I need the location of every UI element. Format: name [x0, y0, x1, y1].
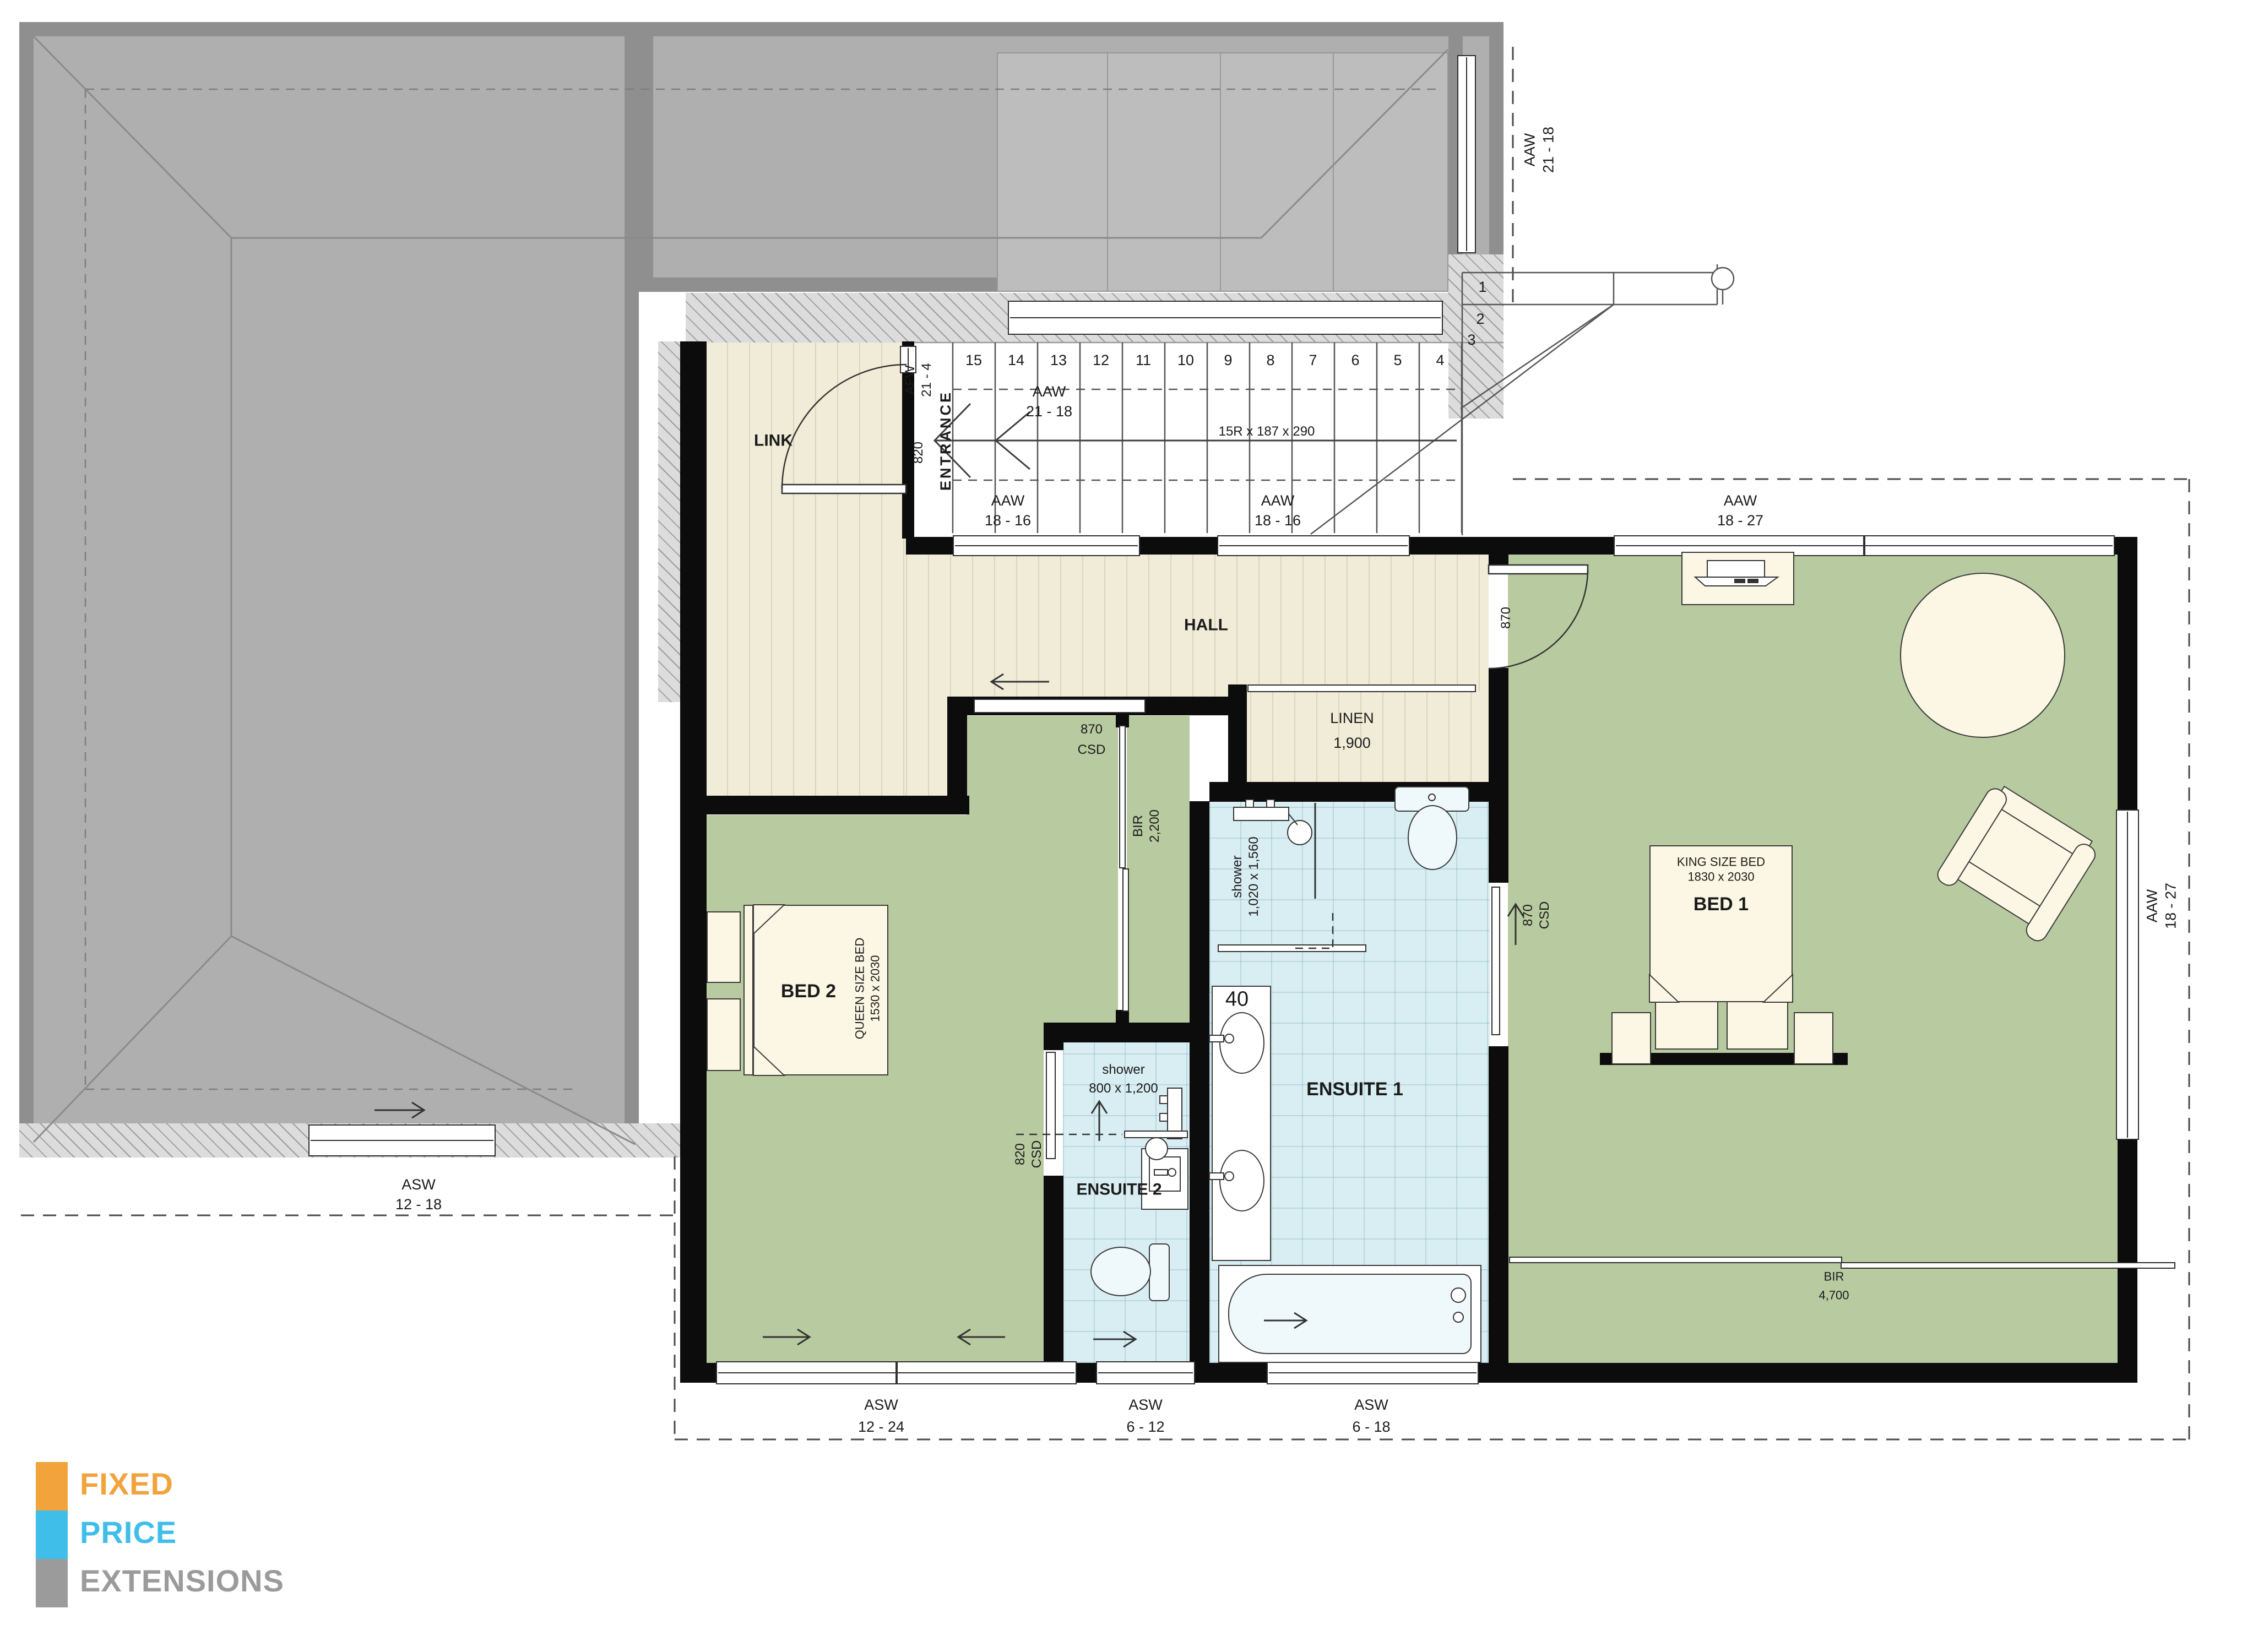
- stair-number: 9: [1224, 351, 1232, 370]
- hall-window-a-code: AAW: [991, 492, 1025, 510]
- bed1-desk: [1681, 552, 1794, 605]
- entrance-label: ENTRANCE: [937, 390, 956, 491]
- stair-number: 6: [1351, 351, 1359, 370]
- eave-hatch-stair: [1448, 254, 1503, 419]
- linen-label: LINEN: [1330, 709, 1374, 728]
- wall-ensuite-mid: [1190, 801, 1209, 1363]
- stair-number: 8: [1266, 351, 1274, 370]
- ensuite1-door-width: 870: [1520, 901, 1537, 930]
- ensuite2-window-code: ASW: [1128, 1396, 1163, 1415]
- bed1-bed-type: KING SIZE BED: [1677, 854, 1765, 870]
- top-right-window-code: AAW: [1521, 127, 1539, 173]
- ensuite1-shower-block: shower 1,020 x 1,560: [1229, 836, 1262, 916]
- top-right-window-size: 21 - 18: [1539, 127, 1558, 173]
- bed1-top-window-size: 18 - 27: [1717, 512, 1763, 530]
- stair-number: 12: [1093, 351, 1109, 370]
- existing-side-window: [1457, 55, 1476, 253]
- bed2-bed-type: QUEEN SIZE BED: [853, 938, 868, 1040]
- wall-bed1-left-a: [1489, 537, 1508, 569]
- logo-block-gray: [36, 1559, 68, 1607]
- ensuite1-toilet-bowl: [1408, 805, 1457, 870]
- top-right-window-block: AAW 21 - 18: [1521, 127, 1558, 173]
- bed1-round-table: [1900, 573, 2065, 738]
- stair-winder-1: 1: [1478, 278, 1486, 297]
- floor-plan: LINK ENTRANCE HALL LINEN 1,900 KING SIZE…: [0, 0, 2258, 1652]
- bed1-side-table-right: [1794, 1012, 1833, 1064]
- afw-size: 21 - 4: [919, 363, 935, 396]
- ensuite1-csd-panel: [1491, 887, 1500, 1035]
- window-aaw-18-16-a: [953, 535, 1140, 556]
- window-asw-6-18: [1267, 1361, 1479, 1384]
- stair-number: 5: [1393, 351, 1402, 370]
- logo-block-orange: [36, 1462, 68, 1510]
- window-divider: [895, 1361, 898, 1384]
- bed2-bir-floor: [1127, 716, 1190, 1023]
- bed2-head-edge: [743, 905, 753, 1075]
- bed2-door-width: 870: [1081, 721, 1103, 738]
- logo-word-fixed: FIXED: [80, 1466, 173, 1502]
- bir2-cap-bottom: [1116, 1010, 1129, 1023]
- bed1-pillow-left: [1655, 1001, 1718, 1050]
- bed2-side-table-bottom: [707, 998, 741, 1071]
- roof-panel-line: [1220, 53, 1221, 291]
- hall-label: HALL: [1184, 615, 1228, 635]
- hall-window-b-size: 18 - 16: [1255, 512, 1301, 530]
- bed1-right-window-code: AAW: [2143, 883, 2162, 929]
- ensuite2-toilet-bowl: [1090, 1247, 1151, 1296]
- stair-spec: 15R x 187 x 290: [1219, 423, 1315, 440]
- logo-block-blue: [36, 1510, 68, 1559]
- wall-ensuite2-left-a: [1044, 1023, 1063, 1050]
- ensuite1-label: ENSUITE 1: [1306, 1078, 1403, 1101]
- stair-number: 7: [1309, 351, 1317, 370]
- bed2-bottom-window-code: ASW: [864, 1396, 898, 1415]
- bed2-bir-block: BIR 2,200: [1130, 809, 1163, 843]
- ensuite1-door-block: 870 CSD: [1520, 901, 1553, 930]
- wall-hall-bed2-left: [705, 796, 969, 814]
- bed1-pillow-right: [1727, 1001, 1788, 1050]
- bed1-side-table-left: [1611, 1012, 1651, 1064]
- bed2-bir-size: 2,200: [1147, 809, 1163, 843]
- ensuite2-csd-panel: [1046, 1052, 1056, 1159]
- link-floor: [705, 343, 906, 796]
- ensuite1-window-code: ASW: [1354, 1396, 1388, 1415]
- ensuite1-door-type: CSD: [1537, 901, 1553, 930]
- hall-floor-jog: [906, 698, 947, 797]
- ensuite1-shower-size: 1,020 x 1,560: [1246, 836, 1262, 916]
- ensuite2-door-block: 820 CSD: [1012, 1140, 1045, 1169]
- existing-roof-main: [19, 22, 639, 1156]
- bed2-bed-size: 1530 x 2030: [867, 938, 883, 1040]
- stair-number: 15: [965, 351, 982, 370]
- stair-number: 11: [1136, 351, 1151, 370]
- bed2-bottom-window-size: 12 - 24: [858, 1418, 904, 1437]
- bed1-bir-size: 4,700: [1819, 1287, 1849, 1303]
- ensuite1-shower-label: shower: [1229, 836, 1246, 916]
- ensuite2-toilet-tank: [1149, 1243, 1170, 1301]
- bed2-door-type: CSD: [1078, 742, 1106, 758]
- ensuite1-basin-bottom: [1219, 1150, 1264, 1211]
- ensuite1-vanity-width: 40: [1225, 986, 1249, 1013]
- bed2-csd-track: [974, 699, 1146, 713]
- bed1-label: BED 1: [1694, 893, 1749, 916]
- entry-fixed-window-block: AFW 21 - 4: [902, 363, 935, 396]
- wall-ensuite2-top: [1044, 1023, 1209, 1042]
- bed2-bir-door-b: [1122, 868, 1129, 1012]
- ensuite1-window-size: 6 - 18: [1352, 1418, 1390, 1437]
- link-label: LINK: [754, 430, 793, 451]
- hall-window-a-size: 18 - 16: [985, 512, 1031, 530]
- existing-window-asw-12-18: [308, 1124, 496, 1156]
- bed1-bir-label: BIR: [1824, 1269, 1844, 1284]
- stair-window-code: AAW: [1033, 383, 1066, 401]
- ensuite1-bath-inner: [1228, 1274, 1472, 1354]
- window-aaw-18-16-b: [1217, 535, 1410, 556]
- logo-word-price: PRICE: [80, 1514, 177, 1550]
- stair-number: 4: [1436, 351, 1444, 370]
- existing-roof-lower-section: [997, 52, 1448, 292]
- logo-word-extensions: EXTENSIONS: [80, 1563, 284, 1599]
- bed2-bed-type-block: QUEEN SIZE BED 1530 x 2030: [853, 938, 883, 1040]
- wall-left: [680, 341, 707, 1382]
- ensuite2-window-size: 6 - 12: [1126, 1418, 1164, 1437]
- ensuite2-door-type: CSD: [1029, 1140, 1045, 1169]
- bed1-bir-door-a: [1509, 1257, 1842, 1263]
- ensuite1-basin-top: [1219, 1012, 1264, 1074]
- ensuite2-shower-size: 800 x 1,200: [1089, 1080, 1158, 1097]
- window-asw-6-12: [1096, 1361, 1195, 1384]
- bed1-bed-size: 1830 x 2030: [1687, 869, 1754, 884]
- window-aaw-18-27-right: [2116, 809, 2139, 1140]
- stair-number: 10: [1177, 351, 1194, 370]
- link-door-width: 820: [910, 442, 927, 464]
- stair-winder-2: 2: [1476, 310, 1484, 329]
- bed1-bir-door-b: [1841, 1262, 2175, 1269]
- bed1-right-window-size: 18 - 27: [2162, 883, 2180, 929]
- wall-ensuite2-left-b: [1044, 1176, 1063, 1363]
- stair-number: 14: [1008, 351, 1024, 370]
- bed1-top-window-code: AAW: [1724, 492, 1757, 510]
- stair-window-size: 21 - 18: [1026, 403, 1072, 421]
- linen-size: 1,900: [1333, 734, 1371, 753]
- roof-panel-line: [1333, 53, 1334, 291]
- wall-bed1-left-b: [1489, 668, 1508, 883]
- linen-sliding-door: [1247, 684, 1476, 692]
- stair-winder-3: 3: [1467, 331, 1475, 350]
- skylight-window: [1008, 301, 1443, 335]
- roof-panel-line: [1107, 53, 1108, 291]
- window-divider: [1863, 535, 1865, 556]
- ensuite2-label: ENSUITE 2: [1076, 1179, 1161, 1200]
- bed1-right-window-block: AAW 18 - 27: [2143, 883, 2180, 929]
- bed2-bir-label: BIR: [1130, 809, 1147, 843]
- stair-number: 13: [1050, 351, 1067, 370]
- existing-window-code: ASW: [401, 1176, 436, 1194]
- hall-window-b-code: AAW: [1261, 492, 1295, 510]
- afw-code: AFW: [902, 363, 919, 396]
- existing-window-size: 12 - 18: [395, 1195, 442, 1214]
- bed1-door-width: 870: [1498, 607, 1515, 629]
- ensuite2-shower-label: shower: [1102, 1062, 1144, 1078]
- bed2-side-table-top: [707, 911, 741, 983]
- bed2-bir-door-a: [1119, 725, 1126, 868]
- wall-bed1-left-c: [1489, 1046, 1508, 1363]
- ensuite2-door-width: 820: [1012, 1140, 1029, 1169]
- bed2-label: BED 2: [781, 980, 836, 1003]
